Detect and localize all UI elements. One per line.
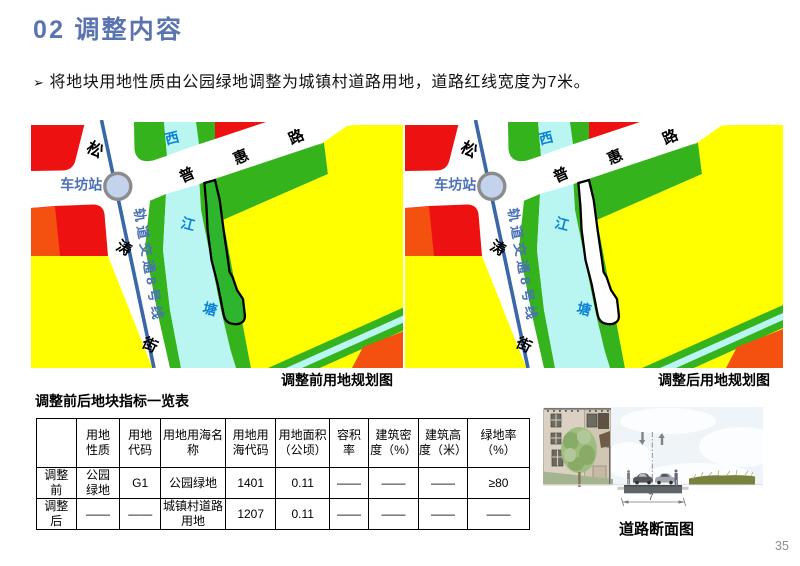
svg-text:惠: 惠	[604, 146, 625, 169]
svg-text:松: 松	[457, 137, 480, 161]
svg-text:普: 普	[176, 164, 197, 187]
svg-text:路: 路	[660, 125, 682, 148]
svg-text:车坊站: 车坊站	[60, 177, 102, 193]
svg-text:车坊站: 车坊站	[434, 177, 476, 193]
svg-text:松: 松	[83, 137, 106, 161]
svg-text:普: 普	[550, 164, 571, 187]
svg-text:路: 路	[286, 125, 308, 148]
svg-text:7: 7	[648, 492, 653, 502]
svg-text:惠: 惠	[230, 146, 251, 169]
